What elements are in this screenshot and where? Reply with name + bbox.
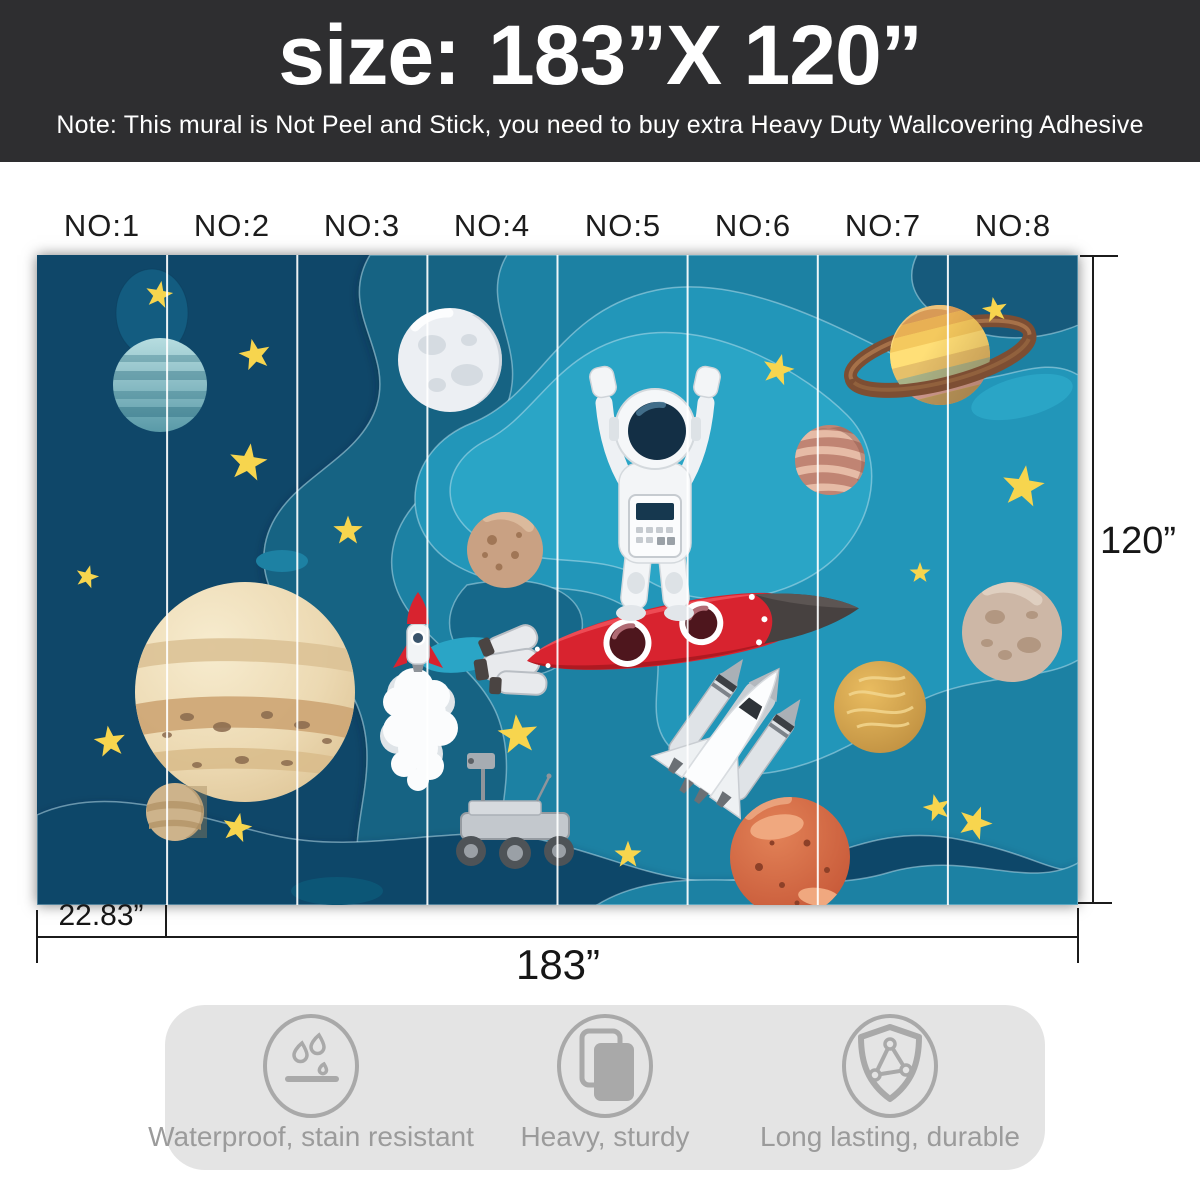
panel-label-8: NO:8 xyxy=(975,208,1051,244)
stack-icon xyxy=(555,1013,655,1119)
panel-label-4: NO:4 xyxy=(454,208,530,244)
panel-label-7: NO:7 xyxy=(845,208,921,244)
total-width-dimension: 183” xyxy=(516,941,600,989)
shield-icon xyxy=(840,1013,940,1119)
height-dimension: 120” xyxy=(1100,520,1176,563)
panel-label-3: NO:3 xyxy=(324,208,400,244)
features-box: Waterproof, stain resistant Heavy, sturd… xyxy=(165,1005,1045,1170)
adhesive-note: Note: This mural is Not Peel and Stick, … xyxy=(0,110,1200,140)
feature-durable: Long lasting, durable xyxy=(690,1013,1090,1153)
size-title-label: size: xyxy=(278,8,460,102)
header-banner: size:183”X 120” Note: This mural is Not … xyxy=(0,0,1200,162)
panel-label-6: NO:6 xyxy=(715,208,791,244)
size-title-value: 183”X 120” xyxy=(488,8,922,102)
panel-width-dimension: 22.83” xyxy=(58,899,143,933)
panel-label-5: NO:5 xyxy=(585,208,661,244)
panel-label-1: NO:1 xyxy=(64,208,140,244)
panel-labels-row: NO:1 NO:2 NO:3 NO:4 NO:5 NO:6 NO:7 NO:8 xyxy=(37,208,1078,248)
size-title: size:183”X 120” xyxy=(0,0,1200,110)
feature-durable-label: Long lasting, durable xyxy=(690,1121,1090,1153)
waterproof-icon xyxy=(261,1013,361,1119)
mural-preview xyxy=(37,255,1078,905)
mural-illustration xyxy=(37,255,1078,905)
small-tan-planet xyxy=(146,783,207,841)
panel-label-2: NO:2 xyxy=(194,208,270,244)
golden-planet xyxy=(834,661,926,753)
